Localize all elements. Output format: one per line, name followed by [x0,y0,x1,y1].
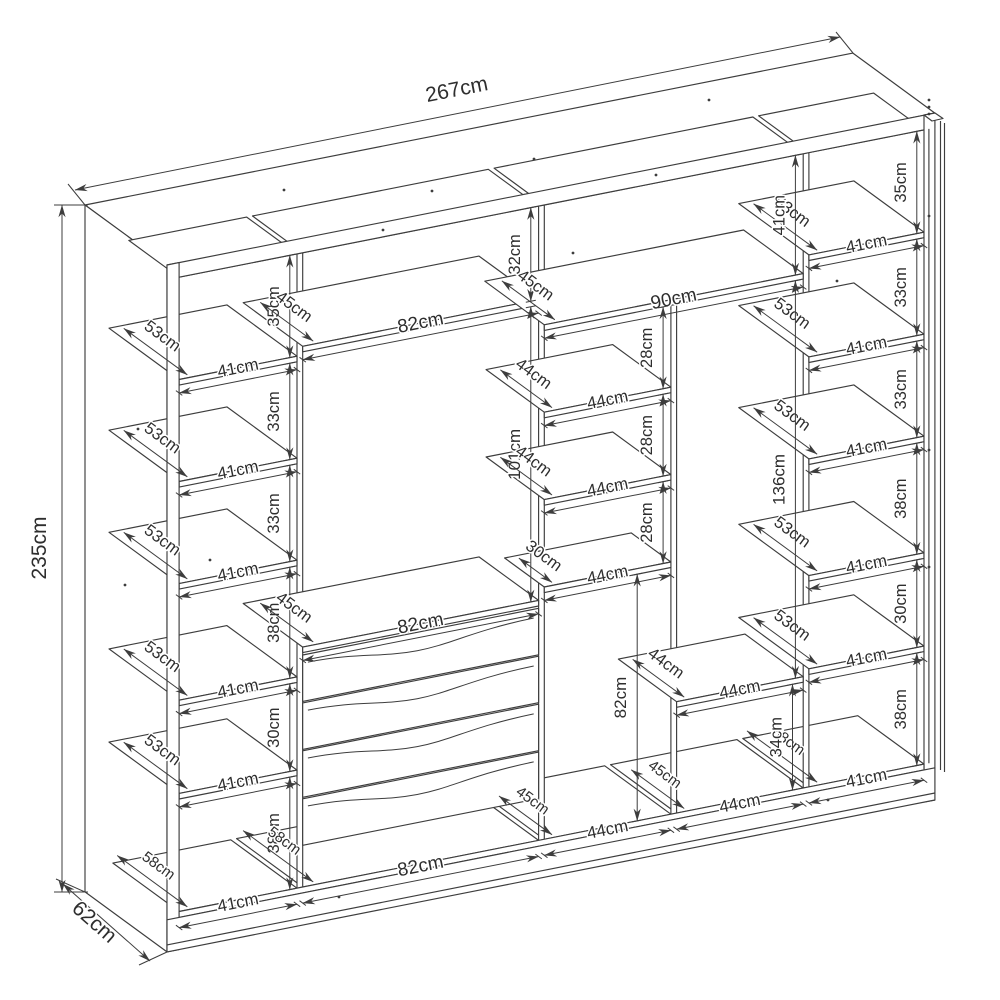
height-dim-label: 38cm [892,479,910,519]
extension-tick [836,32,853,53]
overall-width-label: 267cm [424,72,490,107]
height-dim-label: 38cm [892,689,910,729]
front-left-stile [167,263,179,952]
fitting-dot [382,229,385,232]
fitting-dot [124,584,127,587]
wardrobe-dimension-diagram: 53cm41cm35cm53cm41cm33cm53cm41cm33cm53cm… [0,0,1000,1000]
fitting-dot [708,99,711,102]
height-dim-label: 33cm [265,493,283,533]
fitting-dot [928,215,931,218]
fitting-dot [137,428,140,431]
height-dim-label: 32cm [506,234,524,274]
fitting-dot [928,99,931,102]
height-dim-label: 28cm [638,328,656,368]
height-dim-label: 28cm [638,415,656,455]
height-dim-label: 33cm [892,369,910,409]
left-side-panel [85,205,167,952]
partition [671,304,677,814]
height-dim-label: 30cm [892,583,910,623]
fitting-dot [928,106,931,109]
fitting-dot [572,252,575,255]
diagram-canvas: 53cm41cm35cm53cm41cm33cm53cm41cm33cm53cm… [0,0,1000,1000]
height-dim-label: 33cm [265,391,283,431]
height-dim-label: 33cm [892,267,910,307]
extension-tick [139,952,167,965]
fitting-dot [655,174,658,177]
extension-tick [68,184,85,205]
fitting-dot [928,449,931,452]
fitting-dot [209,559,212,562]
height-dim-label: 41cm [770,195,788,235]
height-dim-label: 35cm [892,162,910,202]
overall-height-label: 235cm [28,516,51,579]
height-dim-label: 136cm [769,454,788,505]
height-dim-label: 28cm [638,502,656,542]
fitting-dot [928,566,931,569]
partition [297,253,303,888]
fitting-dot [283,189,286,192]
height-dim-label: 30cm [265,707,283,747]
fitting-dot [533,158,536,161]
height-dim-label: 82cm [611,677,630,719]
fitting-dot [431,190,434,193]
fitting-dot [836,280,839,283]
height-dim-label: 34cm [768,717,786,757]
fitting-dot [928,113,931,116]
